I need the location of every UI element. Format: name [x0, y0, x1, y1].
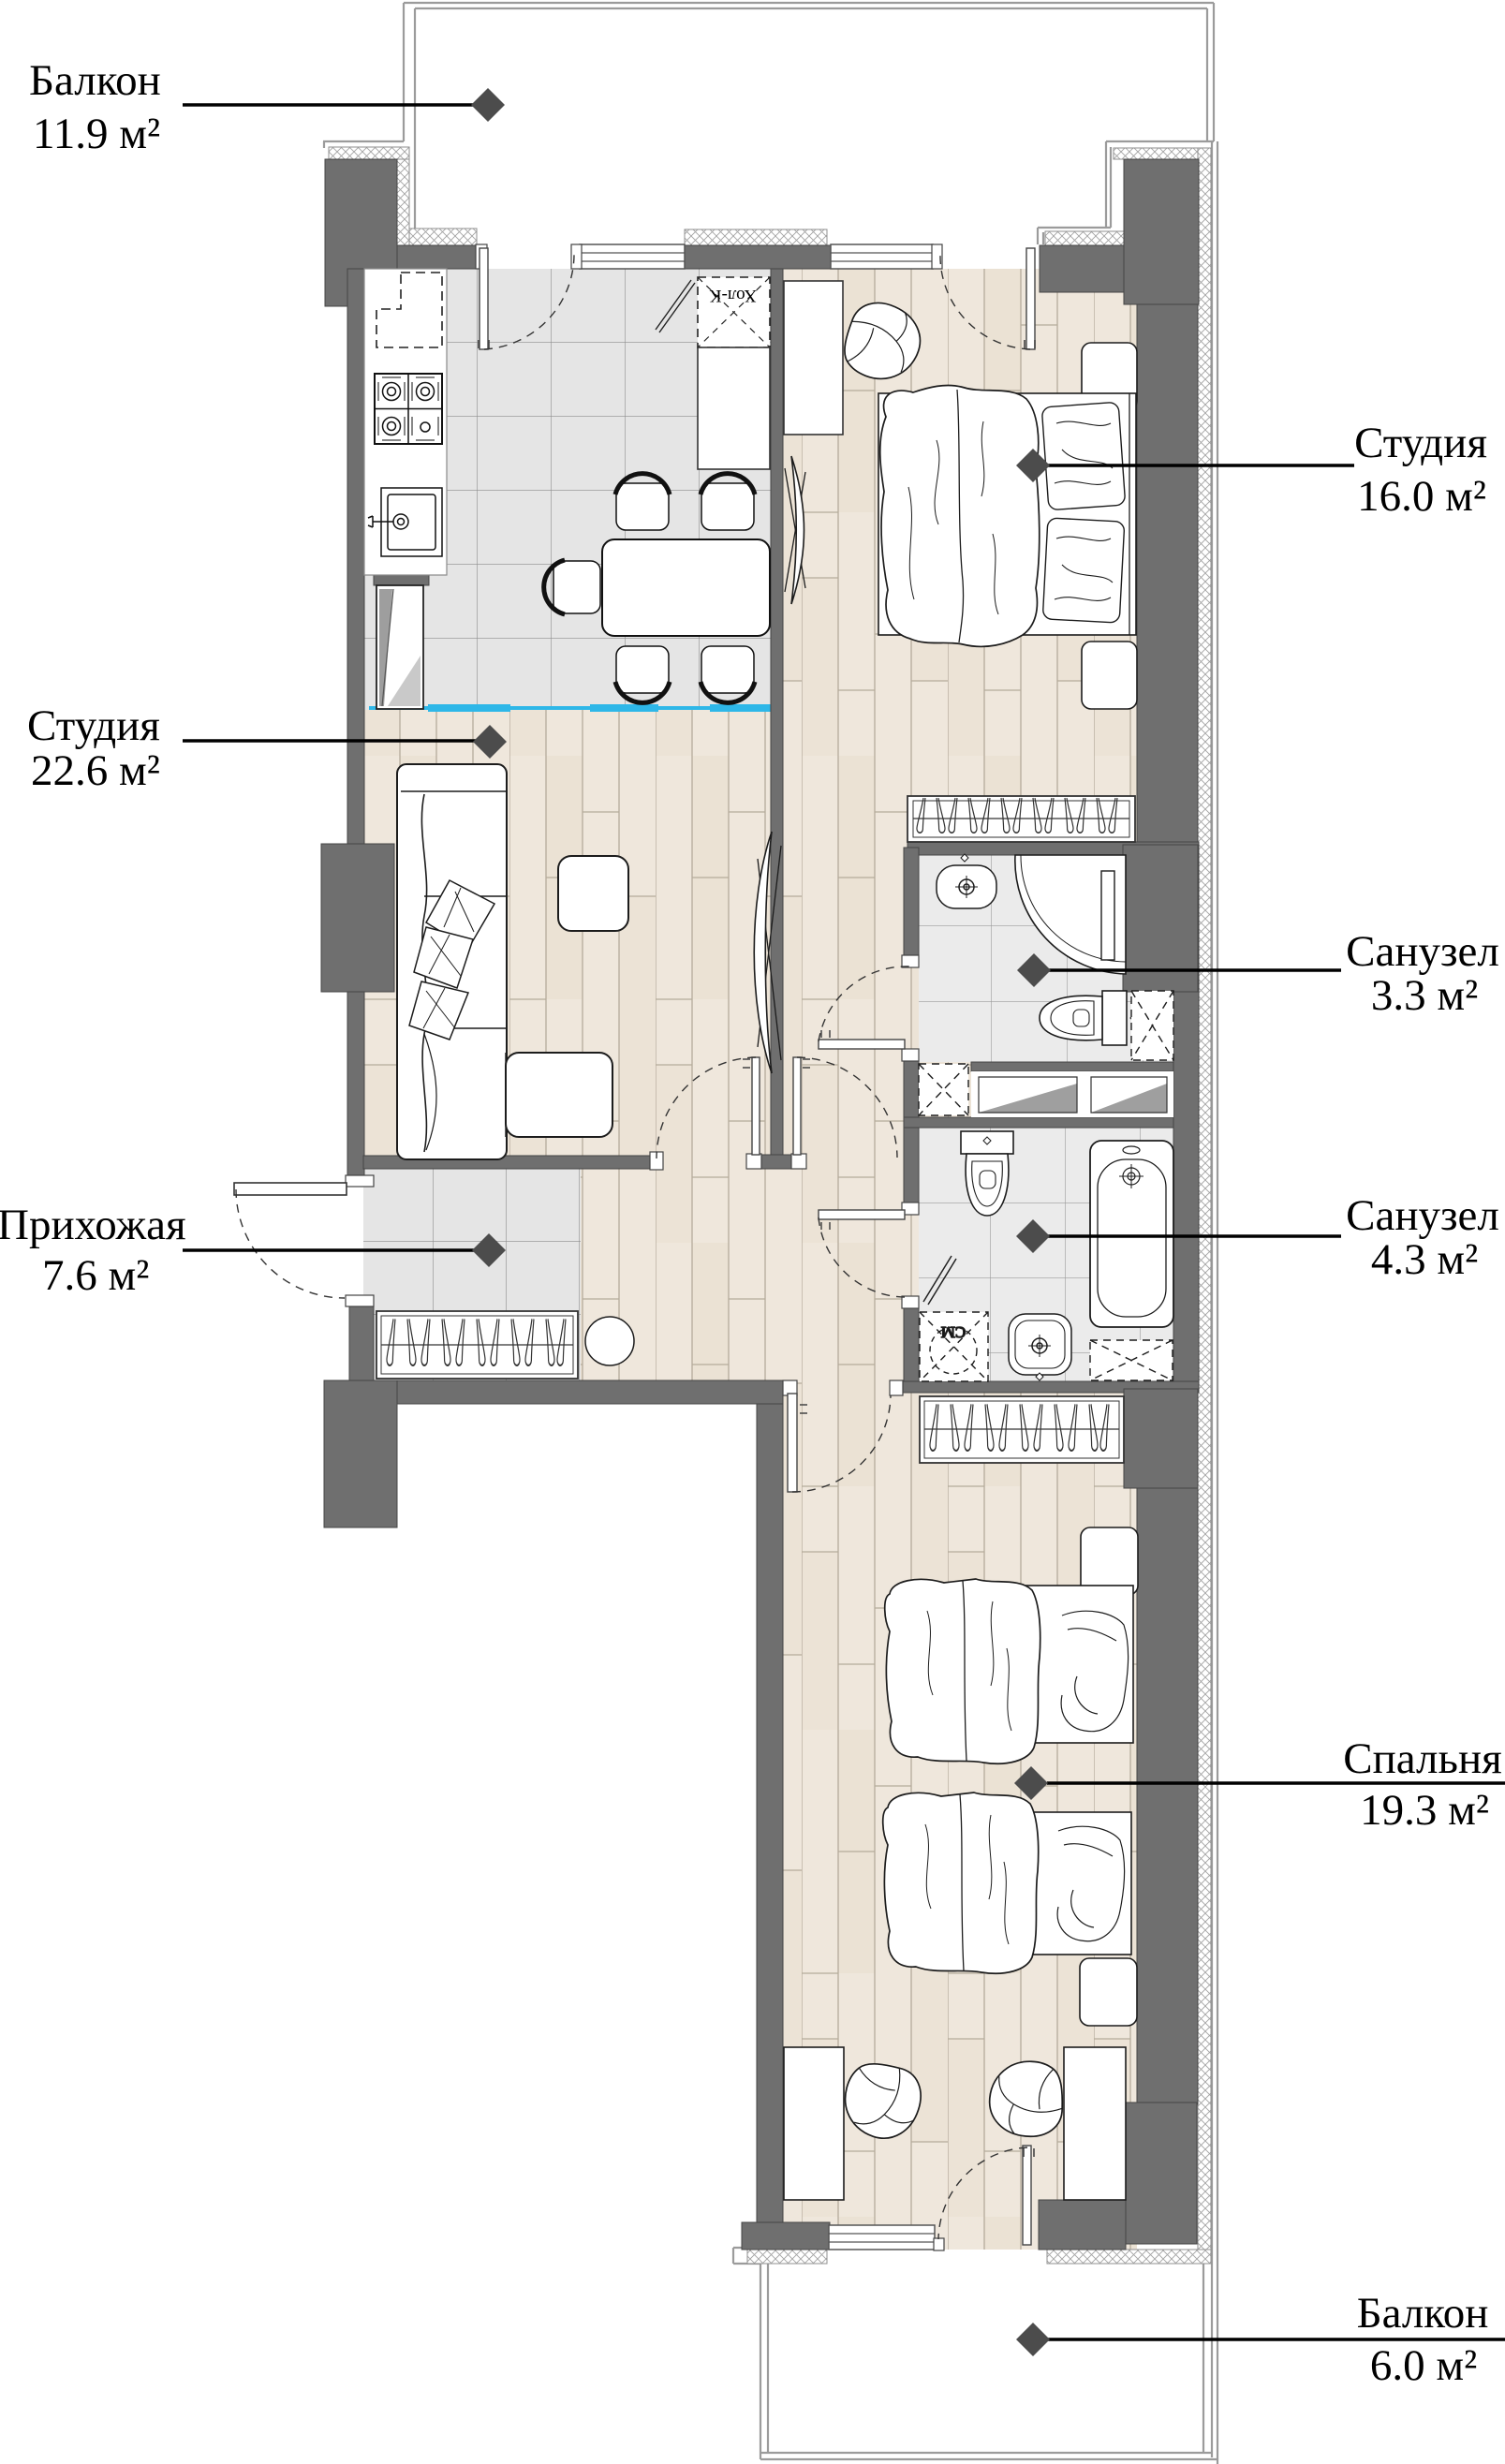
svg-text:Санузел: Санузел: [1346, 927, 1499, 976]
svg-text:Балкон: Балкон: [29, 56, 161, 105]
svg-text:СМ: СМ: [941, 1323, 966, 1341]
svg-text:16.0 м²: 16.0 м²: [1357, 472, 1486, 521]
svg-text:Прихожая: Прихожая: [0, 1201, 186, 1249]
svg-text:Студия: Студия: [27, 701, 160, 750]
svg-text:Хол-К: Хол-К: [710, 286, 758, 305]
svg-text:22.6 м²: 22.6 м²: [31, 746, 160, 795]
svg-text:Санузел: Санузел: [1346, 1191, 1499, 1240]
svg-text:Студия: Студия: [1354, 419, 1487, 467]
svg-text:7.6 м²: 7.6 м²: [42, 1251, 149, 1300]
svg-text:6.0 м²: 6.0 м²: [1370, 2341, 1477, 2390]
svg-text:Балкон: Балкон: [1357, 2289, 1489, 2338]
svg-text:19.3 м²: 19.3 м²: [1360, 1786, 1489, 1835]
svg-text:11.9 м²: 11.9 м²: [33, 110, 160, 158]
svg-text:3.3 м²: 3.3 м²: [1371, 971, 1478, 1020]
svg-text:Спальня: Спальня: [1343, 1734, 1501, 1783]
svg-text:4.3 м²: 4.3 м²: [1371, 1235, 1478, 1284]
